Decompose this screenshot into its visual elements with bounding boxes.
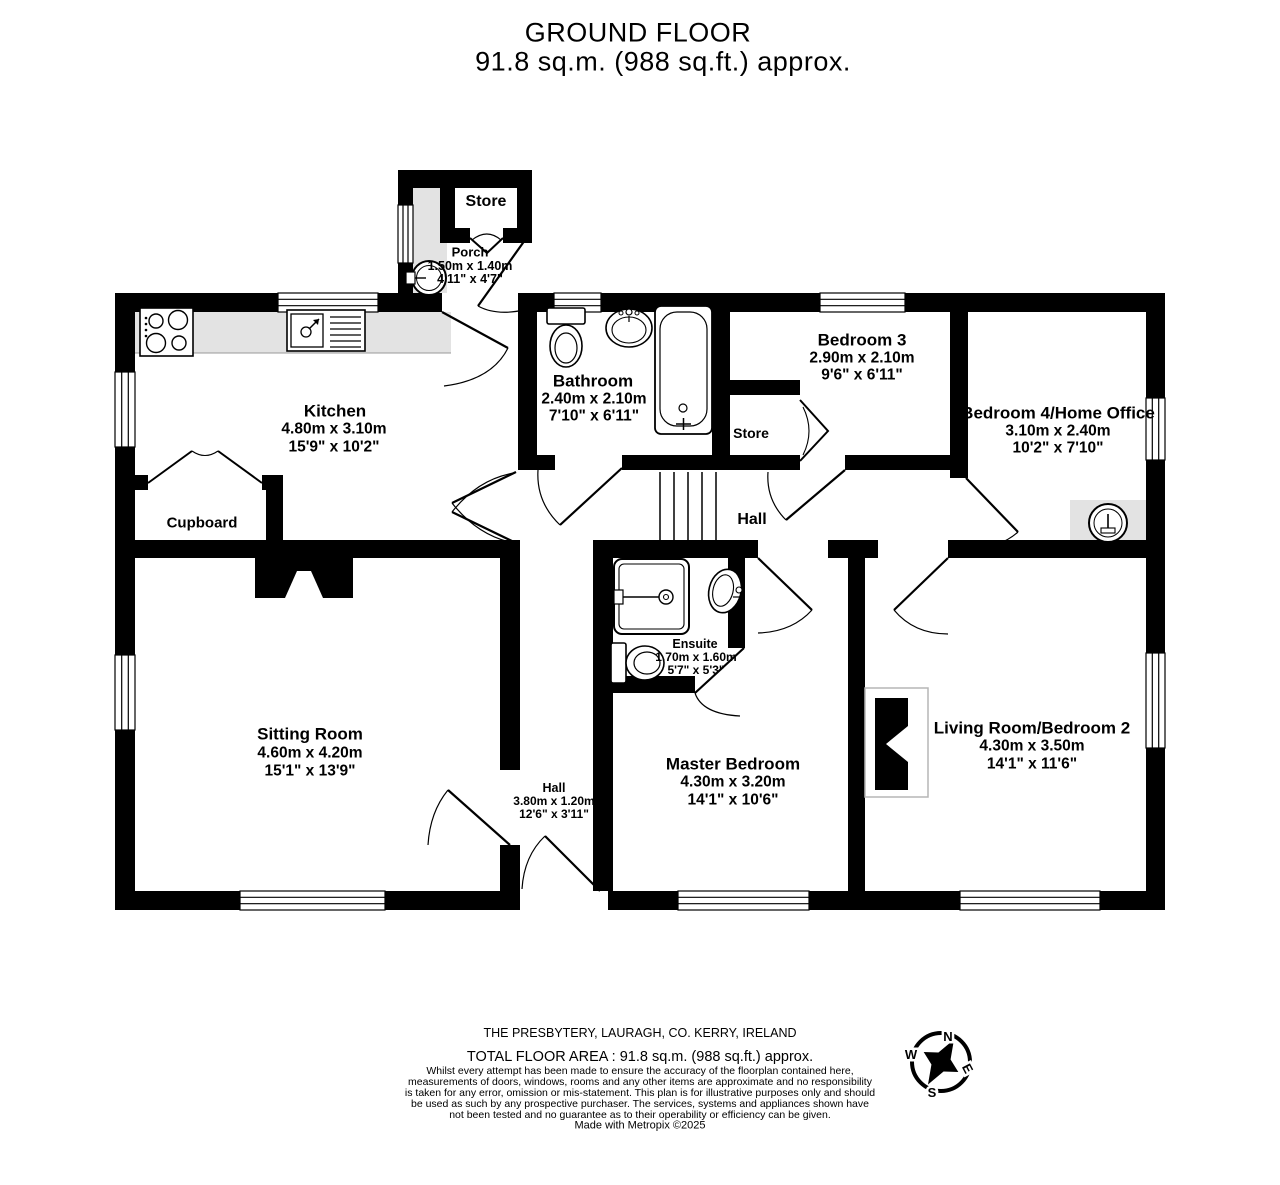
room-label-bedroom3: Bedroom 3 bbox=[818, 332, 907, 349]
kitchen-sink-icon bbox=[287, 310, 365, 351]
room-dims-imperial-bedroom4: 10'2" x 7'10" bbox=[1012, 440, 1103, 456]
room-label-bathroom: Bathroom bbox=[553, 373, 633, 390]
room-dims-imperial-hall-lower: 12'6" x 3'11" bbox=[519, 808, 589, 820]
room-label-porch: Porch bbox=[452, 246, 489, 259]
staircase bbox=[660, 472, 716, 540]
compass-star bbox=[911, 1029, 972, 1094]
compass-south-label: S bbox=[928, 1085, 937, 1100]
room-dims-metric-master-bedroom: 4.30m x 3.20m bbox=[680, 774, 785, 790]
compass-north-label: N bbox=[943, 1029, 952, 1044]
room-dims-imperial-kitchen: 15'9" x 10'2" bbox=[288, 439, 379, 455]
window bbox=[240, 891, 385, 910]
room-dims-imperial-bathroom: 7'10" x 6'11" bbox=[549, 408, 639, 424]
room-dims-metric-ensuite: 1.70m x 1.60m bbox=[655, 651, 736, 663]
room-dims-imperial-porch: 4'11" x 4'7" bbox=[437, 273, 503, 286]
page-title: GROUND FLOOR bbox=[525, 20, 752, 47]
floorplan-page: N W S E GROUND FLOOR 91.8 sq.m. (988 sq.… bbox=[0, 0, 1280, 1185]
room-dims-metric-sitting-room: 4.60m x 4.20m bbox=[257, 745, 362, 761]
room-dims-metric-bathroom: 2.40m x 2.10m bbox=[541, 391, 646, 407]
bathtub-icon bbox=[655, 306, 712, 434]
hob-icon bbox=[140, 308, 193, 356]
room-label-ensuite: Ensuite bbox=[672, 638, 717, 651]
room-label-bedroom4: Bedroom 4/Home Office bbox=[961, 405, 1155, 422]
room-dims-imperial-bedroom3: 9'6" x 6'11" bbox=[821, 367, 903, 383]
window bbox=[398, 205, 413, 263]
floorplan-drawing: N W S E bbox=[0, 0, 1280, 1185]
window bbox=[115, 372, 135, 447]
disclaimer-text: Whilst every attempt has been made to en… bbox=[403, 1066, 877, 1121]
shaded-areas bbox=[135, 188, 1146, 546]
metropix-credit: Made with Metropix ©2025 bbox=[574, 1121, 705, 1132]
room-label-sitting-room: Sitting Room bbox=[257, 726, 363, 743]
room-label-hall: Hall bbox=[737, 512, 766, 528]
room-dims-metric-kitchen: 4.80m x 3.10m bbox=[281, 421, 386, 437]
window bbox=[115, 655, 135, 730]
bathroom-toilet-icon bbox=[547, 308, 585, 367]
room-label-store-hall: Store bbox=[733, 426, 769, 440]
room-label-cupboard: Cupboard bbox=[167, 516, 238, 531]
shower-icon bbox=[614, 559, 689, 634]
window bbox=[960, 891, 1100, 910]
room-label-hall-lower: Hall bbox=[543, 782, 566, 795]
room-dims-metric-bedroom4: 3.10m x 2.40m bbox=[1005, 423, 1110, 439]
page-subtitle: 91.8 sq.m. (988 sq.ft.) approx. bbox=[475, 49, 851, 76]
compass-rose: N W S E bbox=[905, 1029, 977, 1100]
room-dims-metric-living-room: 4.30m x 3.50m bbox=[979, 738, 1084, 754]
window bbox=[678, 891, 809, 910]
window bbox=[820, 293, 905, 312]
room-label-store-porch: Store bbox=[466, 194, 507, 210]
fireplace-sitting-icon bbox=[255, 558, 353, 598]
room-dims-metric-porch: 1.50m x 1.40m bbox=[428, 260, 513, 273]
bathroom-basin-icon bbox=[606, 309, 652, 347]
window bbox=[278, 293, 378, 312]
room-dims-imperial-sitting-room: 15'1" x 13'9" bbox=[264, 763, 355, 779]
room-dims-imperial-ensuite: 5'7" x 5'3" bbox=[667, 664, 724, 676]
room-label-living-room: Living Room/Bedroom 2 bbox=[934, 720, 1130, 737]
room-dims-imperial-master-bedroom: 14'1" x 10'6" bbox=[687, 792, 778, 808]
compass-west-label: W bbox=[905, 1047, 918, 1062]
total-floor-area: TOTAL FLOOR AREA : 91.8 sq.m. (988 sq.ft… bbox=[467, 1050, 813, 1065]
window bbox=[1146, 653, 1165, 748]
bedroom4-basin-icon bbox=[1089, 504, 1127, 542]
room-label-kitchen: Kitchen bbox=[304, 403, 366, 420]
room-dims-imperial-living-room: 14'1" x 11'6" bbox=[987, 756, 1077, 772]
room-dims-metric-bedroom3: 2.90m x 2.10m bbox=[809, 350, 914, 366]
property-address: THE PRESBYTERY, LAURAGH, CO. KERRY, IREL… bbox=[483, 1027, 796, 1040]
room-label-master-bedroom: Master Bedroom bbox=[666, 756, 800, 773]
porch-top-wall bbox=[398, 170, 532, 188]
fireplace-living-icon bbox=[865, 688, 928, 797]
room-dims-metric-hall-lower: 3.80m x 1.20m bbox=[513, 795, 594, 807]
